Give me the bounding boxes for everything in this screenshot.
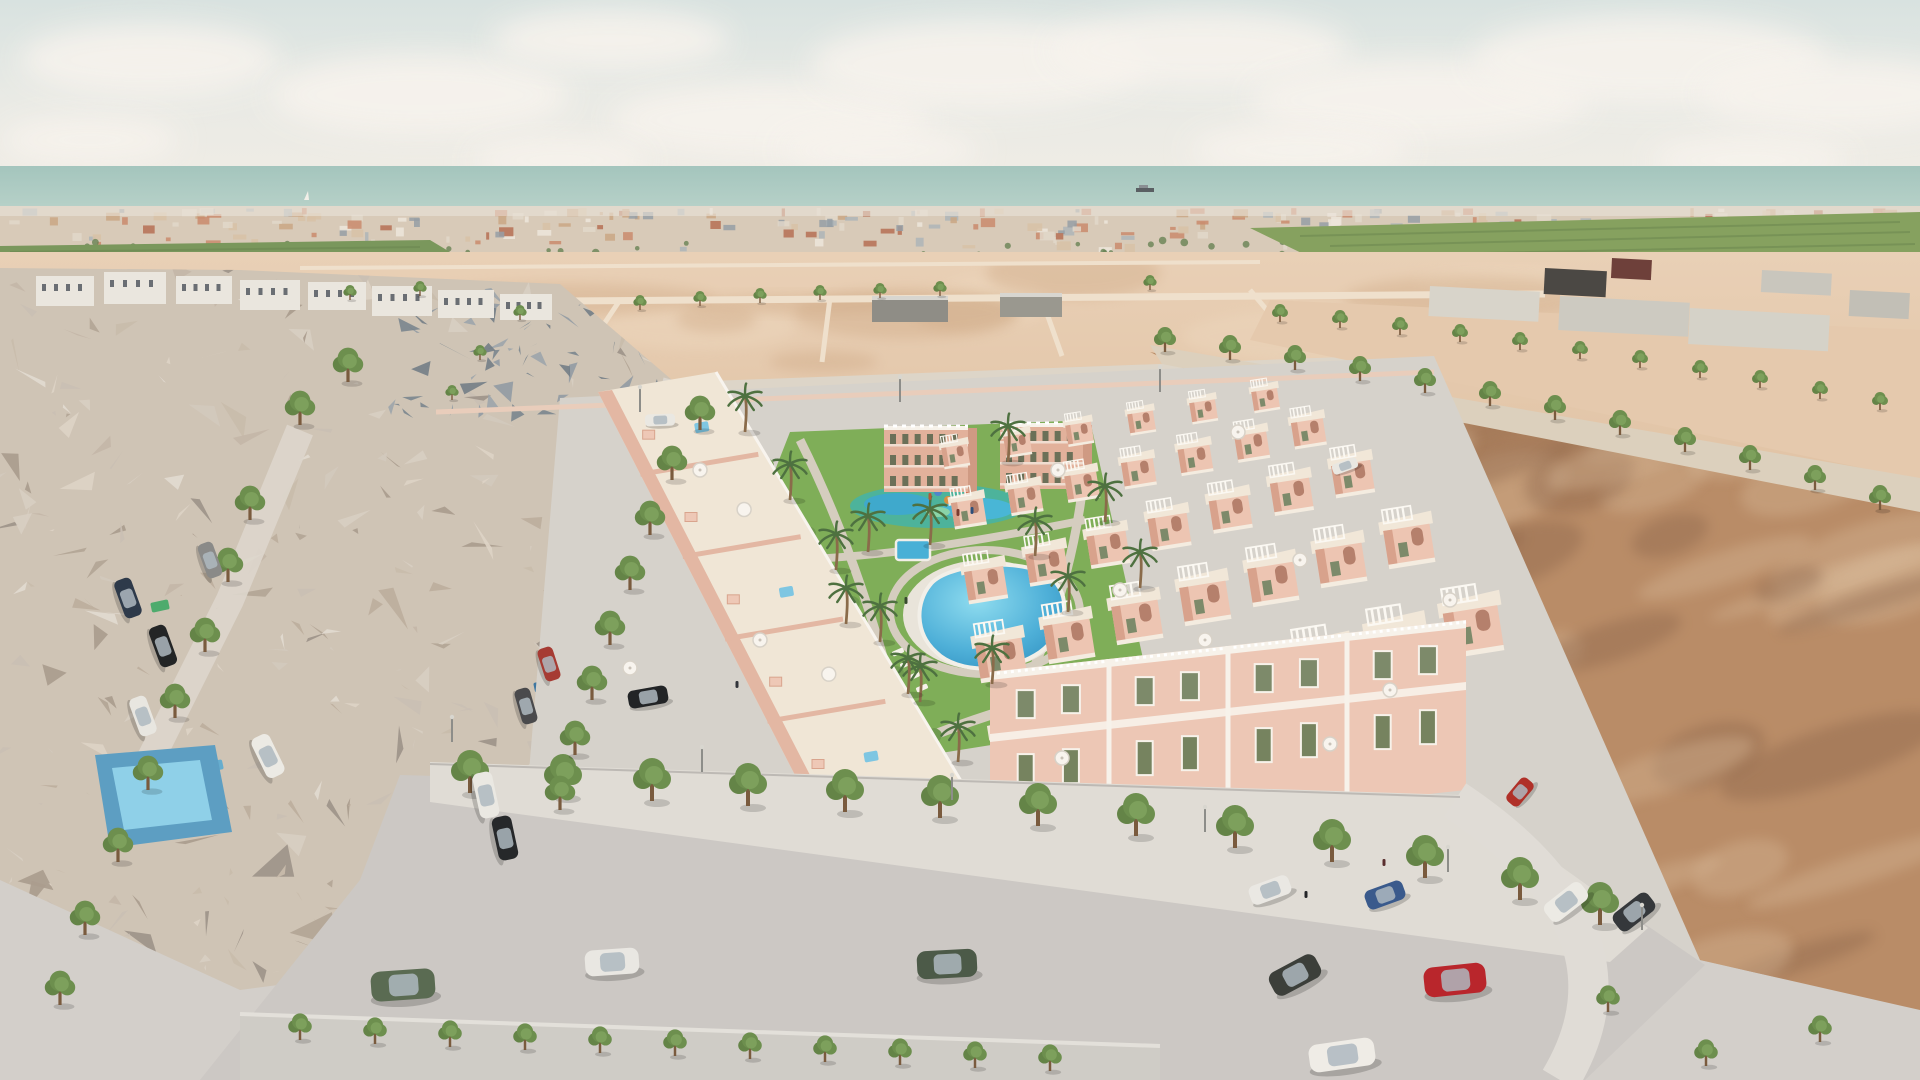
window <box>1181 672 1199 700</box>
car-white-car-road <box>645 413 679 429</box>
parasol <box>1383 683 1397 697</box>
person <box>971 507 974 514</box>
door <box>1256 728 1272 762</box>
parasol <box>1198 633 1212 647</box>
window <box>1374 651 1392 679</box>
aerial-render <box>0 0 1920 1080</box>
condo-building <box>176 276 232 304</box>
door <box>1137 741 1153 775</box>
condo-building <box>308 282 366 310</box>
door <box>1420 710 1436 744</box>
condo-building <box>240 280 300 310</box>
condo-building <box>500 294 552 320</box>
horizon-haze <box>0 206 1920 216</box>
industrial-building <box>1688 308 1830 351</box>
person <box>1305 891 1308 898</box>
industrial-building <box>1611 258 1652 280</box>
parasol <box>1113 583 1127 597</box>
window <box>1300 659 1318 687</box>
condo-building <box>36 276 94 306</box>
cloud <box>20 24 280 96</box>
parasol <box>1443 593 1457 607</box>
roof-parasol <box>822 667 836 681</box>
industrial-building <box>1849 290 1910 319</box>
streets <box>200 762 1705 1080</box>
small-pool <box>896 540 930 560</box>
person <box>905 597 908 604</box>
door <box>1375 715 1391 749</box>
industrial-building <box>1558 296 1690 337</box>
cloud <box>270 55 570 135</box>
industrial-building <box>1544 268 1607 297</box>
roof-parasol <box>737 503 751 517</box>
window <box>1136 677 1154 705</box>
parasol <box>1293 553 1307 567</box>
parasol <box>1231 425 1245 439</box>
cloud <box>0 116 180 164</box>
door <box>1301 723 1317 757</box>
stair-bulkhead <box>727 595 739 604</box>
stair-bulkhead <box>685 513 697 522</box>
industrial-building <box>1428 286 1539 322</box>
parasol <box>1055 751 1069 765</box>
parasol <box>1051 463 1065 477</box>
window <box>1419 646 1437 674</box>
car-darkgreen-suv <box>915 948 983 986</box>
cloud <box>780 128 980 172</box>
warehouse <box>1000 293 1062 317</box>
parasol <box>1323 737 1337 751</box>
cloud <box>490 10 730 70</box>
door <box>1182 736 1198 770</box>
render-canvas <box>0 0 1920 1080</box>
stair-bulkhead <box>812 760 824 769</box>
window <box>1062 685 1080 713</box>
condo-building <box>438 290 494 318</box>
person <box>736 681 739 688</box>
stair-bulkhead <box>643 430 655 439</box>
window <box>1017 690 1035 718</box>
person <box>1383 859 1386 866</box>
industrial-building <box>1761 270 1832 296</box>
stair-bulkhead <box>770 677 782 686</box>
condo-building <box>104 272 166 304</box>
window <box>1255 664 1273 692</box>
parasol <box>753 633 767 647</box>
person <box>929 493 932 500</box>
parasol <box>623 661 637 675</box>
parasol <box>693 463 707 477</box>
person <box>957 509 960 516</box>
